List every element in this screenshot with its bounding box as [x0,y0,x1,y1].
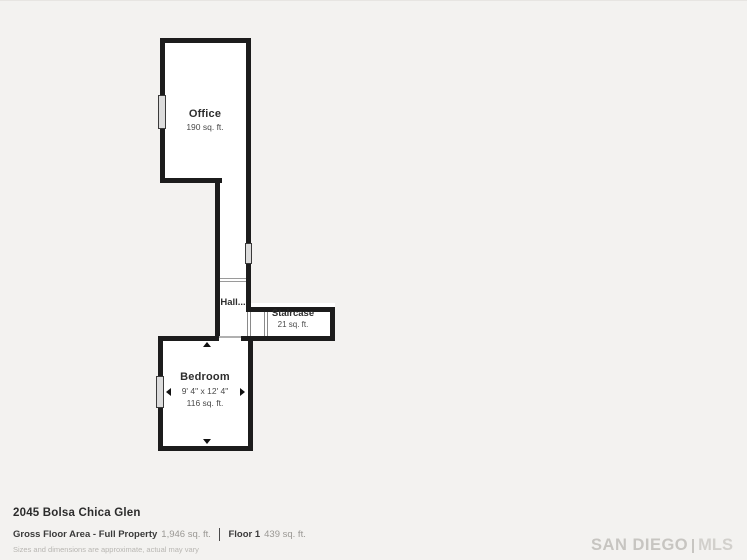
dimension-arrow-up-icon [203,342,211,347]
office-window [158,95,166,129]
logo-text-san-diego: SAN DIEGO [591,536,688,555]
office-bottom-wall [160,178,222,183]
gross-floor-area-value: 1,946 sq. ft. [161,529,211,540]
floor-area-summary: Gross Floor Area - Full Property 1,946 s… [13,528,306,541]
hall-window [245,243,252,264]
office-top-wall [160,38,251,43]
logo-text-mls: MLS [698,536,733,555]
staircase-door-jamb-left [247,312,251,336]
footer-divider [0,0,747,1]
dimension-arrow-left-icon [166,388,171,396]
metrics-separator [219,528,221,541]
bedroom-door-opening [219,336,241,341]
property-address: 2045 Bolsa Chica Glen [13,507,141,519]
office-area-label: 190 sq. ft. [186,122,223,132]
staircase-room-label: Staircase [272,308,314,319]
dimension-arrow-right-icon [240,388,245,396]
bedroom-area-label: 116 sq. ft. [187,398,224,408]
bedroom-window [156,376,164,408]
office-room-label: Office [189,108,221,120]
floor-label: Floor 1 [228,529,260,540]
bedroom-bottom-wall [158,446,253,451]
floorplan-canvas: Office 190 sq. ft. Hall... Staircase 21 … [0,0,747,560]
staircase-area-label: 21 sq. ft. [278,320,309,329]
staircase-door-jamb-right [264,312,268,336]
staircase-bottom-wall [248,336,335,341]
gross-floor-area-label: Gross Floor Area - Full Property [13,529,157,540]
bedroom-room-label: Bedroom [180,371,230,383]
floor-value: 439 sq. ft. [264,529,306,540]
dimension-arrow-down-icon [203,439,211,444]
disclaimer-text: Sizes and dimensions are approximate, ac… [13,545,199,554]
hall-left-wall [215,178,220,341]
logo-divider-bar [692,539,694,553]
sandiego-mls-logo: SAN DIEGO MLS [591,536,733,555]
hall-opening [220,278,246,282]
hall-room-label: Hall... [220,297,245,308]
office-hall-right-wall [246,38,251,312]
bedroom-dimensions-label: 9' 4" x 12' 4" [182,386,229,396]
bedroom-right-wall [248,336,253,451]
